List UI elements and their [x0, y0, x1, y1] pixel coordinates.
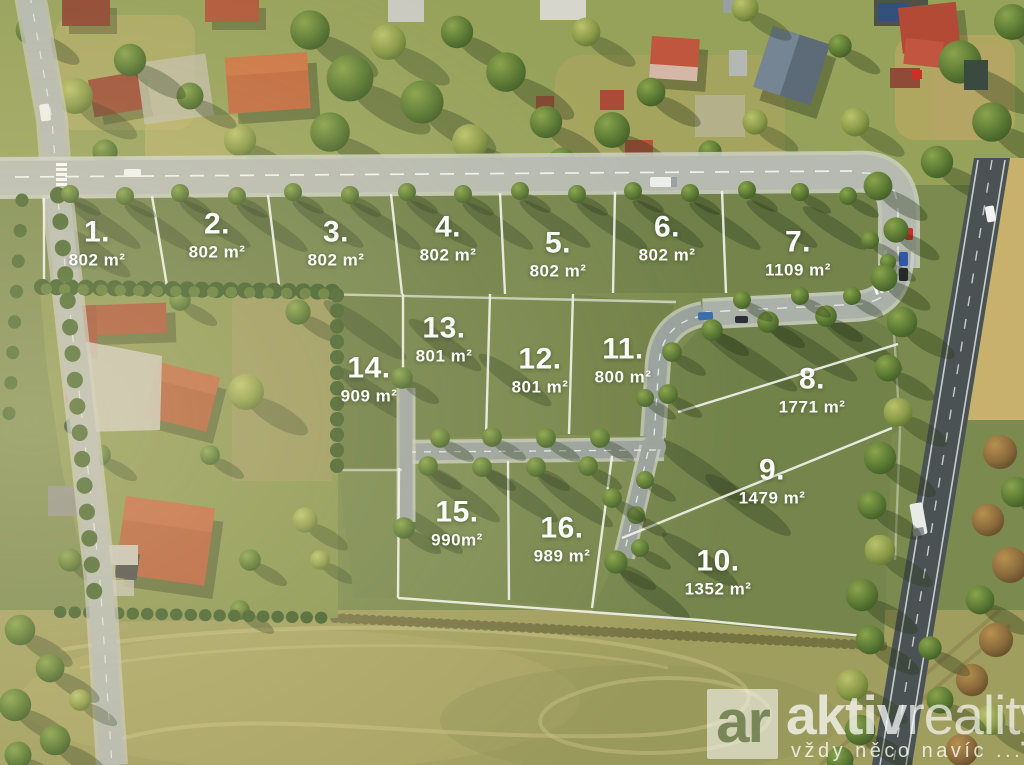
brand-light: reality [906, 684, 1024, 746]
sunlight-overlay [0, 0, 1024, 765]
aerial-plot-map: 1.802 m² 2.802 m² 3.802 m² 4.802 m² 5.80… [0, 0, 1024, 765]
brand-tagline: vždy něco navíc ... [786, 740, 1024, 763]
brand-name: aktivreality [786, 694, 1024, 737]
watermark: ar aktivreality vždy něco navíc ... [707, 689, 1024, 759]
aerial-scene [0, 0, 1024, 765]
watermark-text: aktivreality vždy něco navíc ... [786, 694, 1024, 763]
aktivreality-logo: ar [707, 689, 778, 759]
brand-bold: aktiv [786, 684, 906, 746]
